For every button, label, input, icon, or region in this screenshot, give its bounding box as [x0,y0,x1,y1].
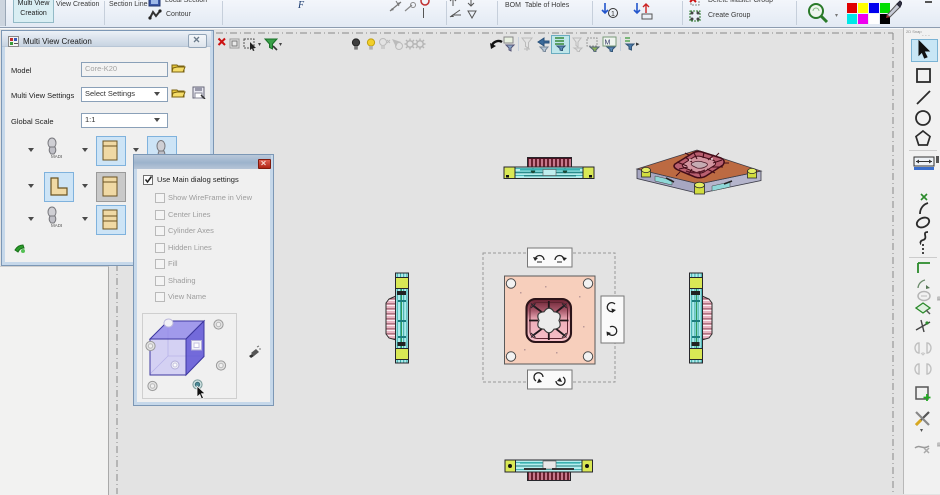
svg-text:MADE: MADE [51,223,62,228]
svg-text:MADE: MADE [51,154,62,159]
svg-text:M: M [605,40,611,47]
